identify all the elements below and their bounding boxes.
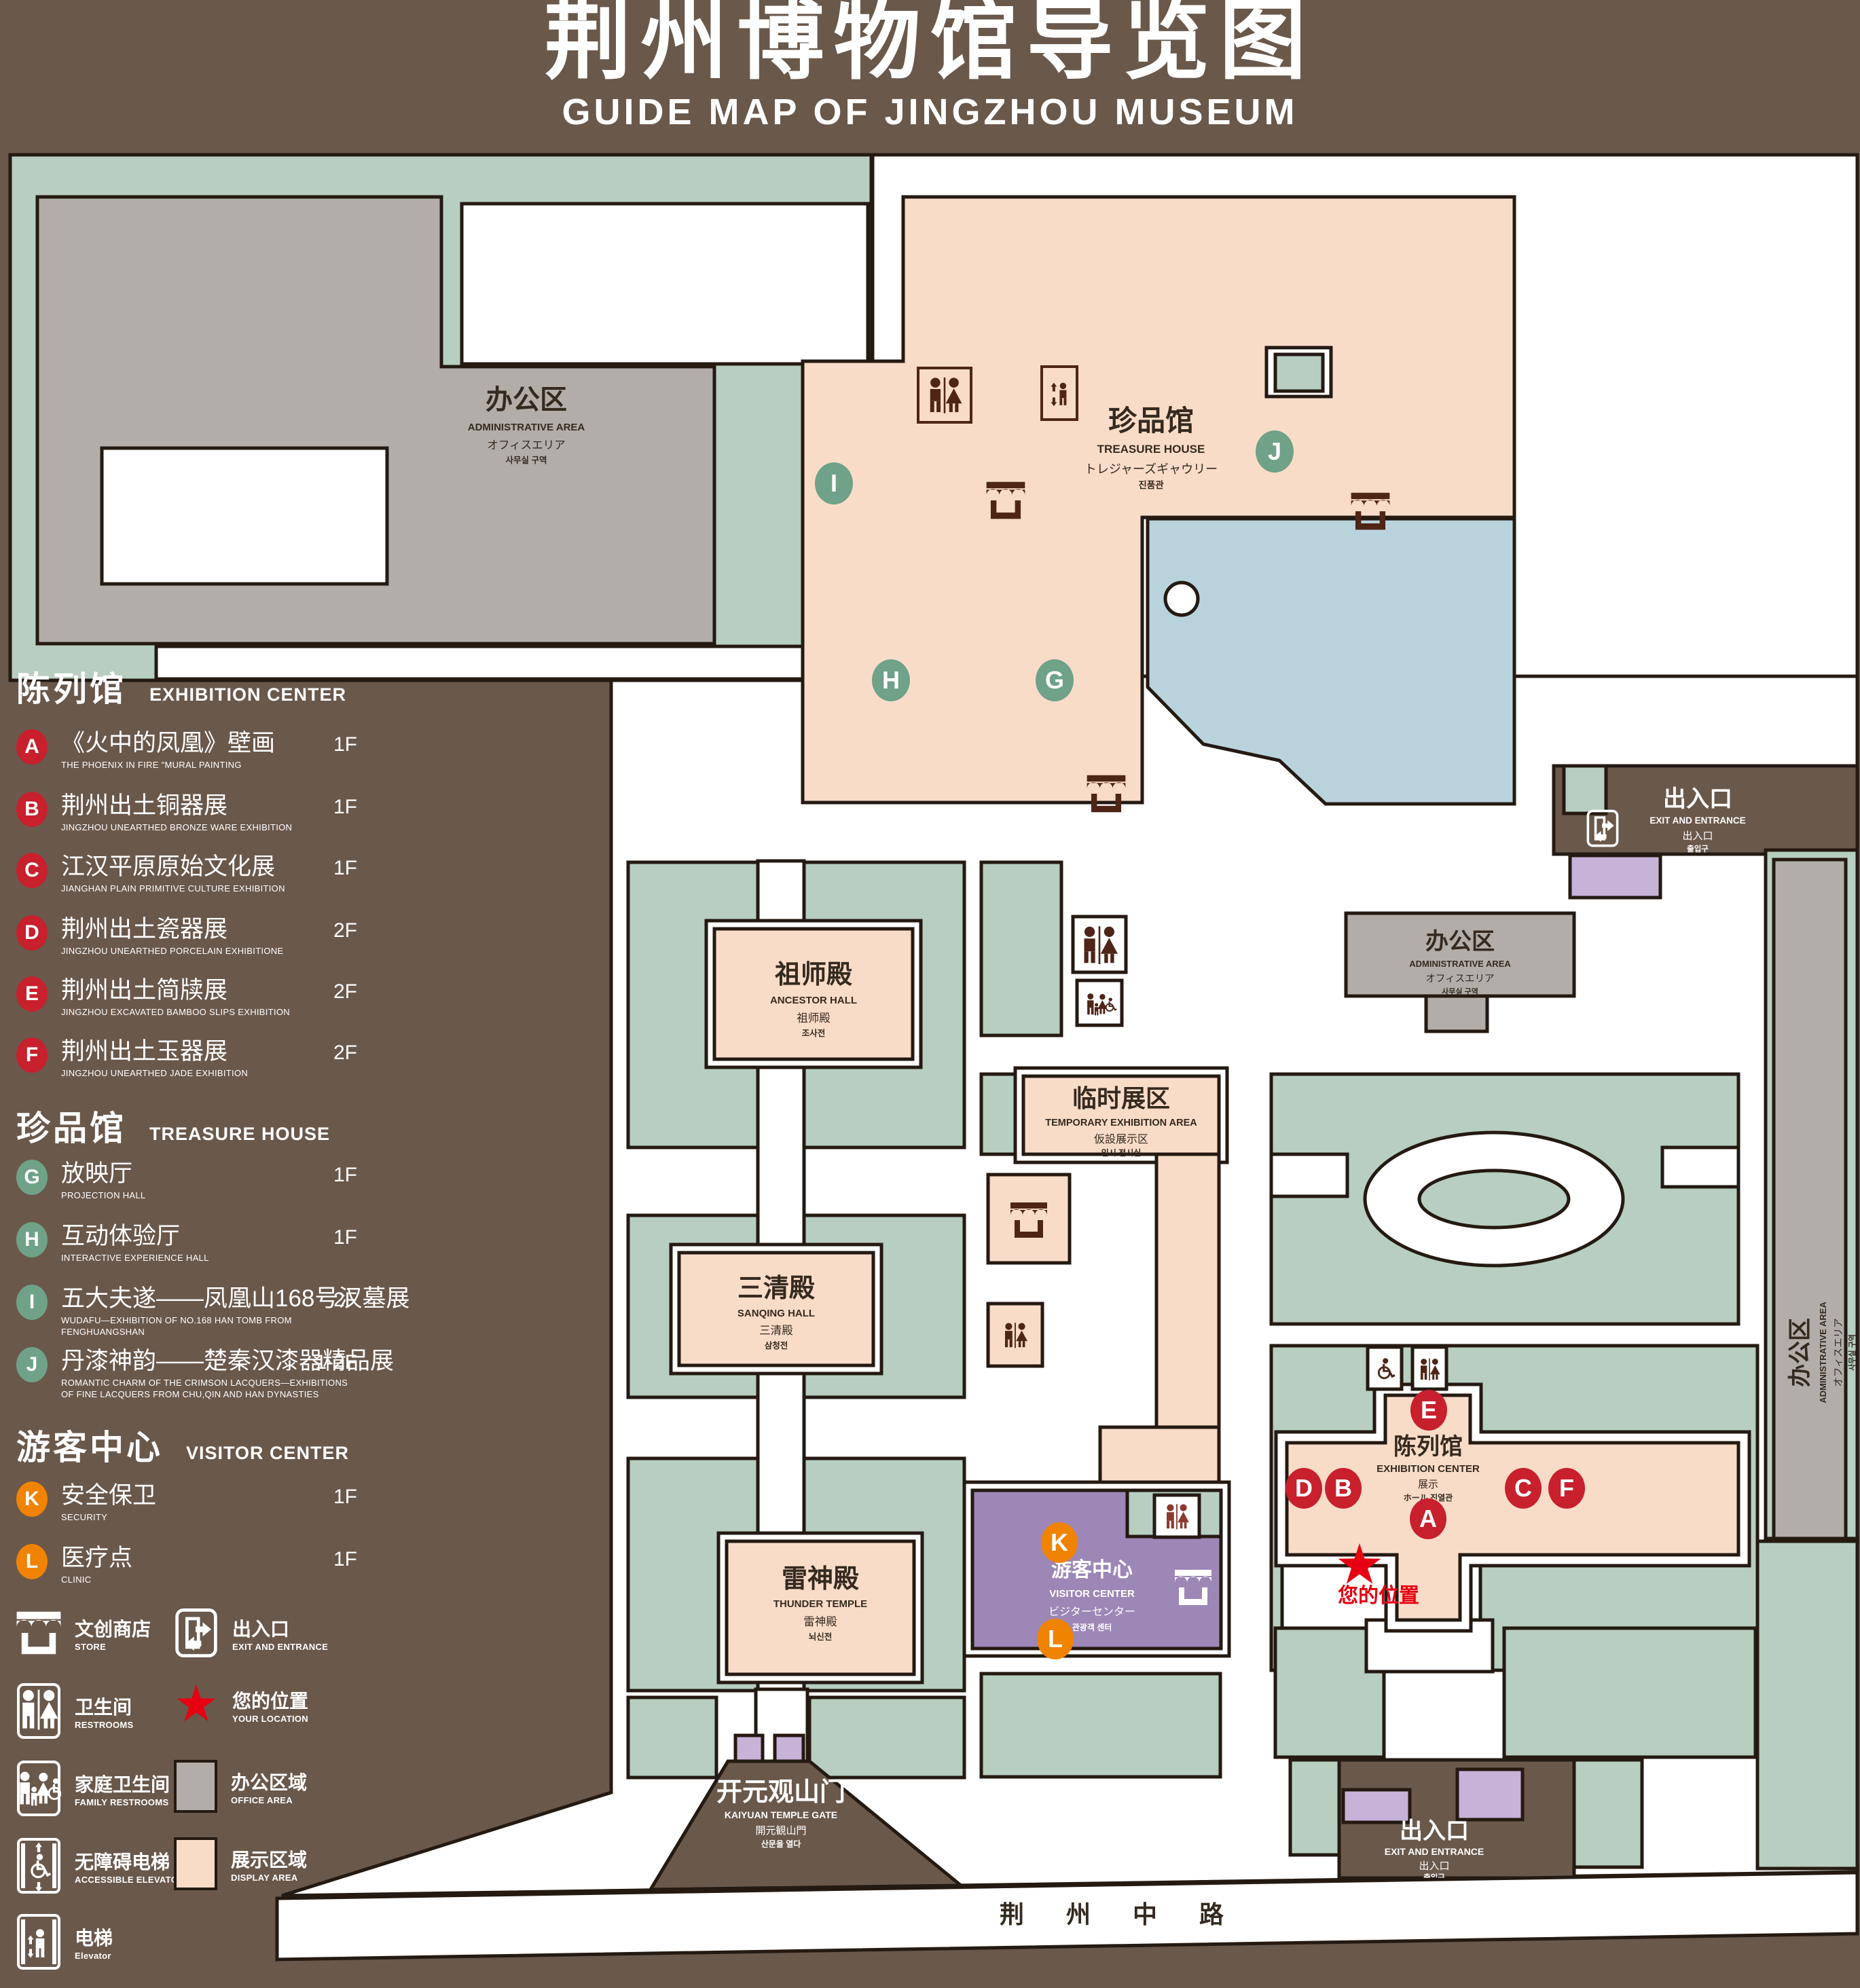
legend-elevator: 电梯Elevator [16, 1913, 113, 1970]
svg-text:I: I [831, 469, 837, 497]
badge-f: F [16, 1037, 48, 1073]
svg-text:オフィスエリア: オフィスエリア [487, 439, 565, 452]
road-label: 荆 州 中 路 [1000, 1900, 1241, 1928]
exit-icon [174, 1606, 219, 1659]
svg-text:開元観山門: 開元観山門 [755, 1825, 806, 1837]
floor-badge: 1F [333, 1226, 357, 1249]
badge-g: G [16, 1160, 48, 1195]
svg-text:THUNDER TEMPLE: THUNDER TEMPLE [773, 1598, 867, 1610]
svg-text:祖师殿: 祖师殿 [797, 1012, 831, 1025]
green-exit-west [1290, 1760, 1339, 1855]
svg-text:仮設展示区: 仮設展示区 [1094, 1133, 1148, 1145]
svg-text:ADMINISTRATIVE AREA: ADMINISTRATIVE AREA [1818, 1302, 1828, 1403]
garden-path-west [1271, 1154, 1347, 1196]
svg-text:출입구: 출입구 [1687, 844, 1709, 853]
legend-item-f: F 荆州出土玉器展 JINGZHOU UNEARTHED JADE EXHIBI… [16, 1036, 357, 1079]
legend-icons-row-5: 电梯Elevator [16, 1913, 369, 1974]
floor-badge: 2F [333, 980, 357, 1004]
svg-text:관광객 센터: 관광객 센터 [1072, 1622, 1112, 1632]
badge-h: H [16, 1222, 48, 1257]
svg-text:진품관: 진품관 [1138, 479, 1164, 490]
floor-badge: 2F [333, 1289, 357, 1312]
badge-e: E [16, 976, 48, 1012]
svg-text:A: A [1419, 1505, 1437, 1532]
floor-badge: 1F [333, 1486, 357, 1509]
legend-item-d: D 荆州出土瓷器展 JINGZHOU UNEARTHED PORCELAIN E… [16, 914, 357, 957]
marker-g: G [1036, 659, 1074, 701]
svg-text:陈列馆: 陈列馆 [1393, 1434, 1463, 1460]
green-gate-east [809, 1697, 964, 1778]
svg-text:出入口: 出入口 [1663, 786, 1732, 812]
svg-text:TREASURE HOUSE: TREASURE HOUSE [1097, 443, 1205, 456]
marker-f: F [1548, 1468, 1585, 1509]
svg-text:ADMINISTRATIVE AREA: ADMINISTRATIVE AREA [468, 422, 585, 433]
display-area-swatch [174, 1837, 217, 1890]
svg-text:ビジターセンター: ビジターセンター [1048, 1606, 1135, 1618]
legend-item-k: K 安全保卫 SECURITY 1F [16, 1480, 357, 1523]
exit-building-east [1457, 1769, 1522, 1820]
office-area-swatch [174, 1760, 217, 1813]
store-icon [16, 1606, 61, 1659]
garden-path-east [1662, 1147, 1738, 1187]
legend-your-location: 您的位置YOUR LOCATION [174, 1682, 308, 1727]
badge-a: A [16, 729, 48, 765]
elevator-icon [16, 1913, 61, 1970]
family-restroom-icon [16, 1760, 61, 1817]
legend-icons-row-4: 无障碍电梯ACCESSIBLE ELEVATOR 展示区域DISPLAY ARE… [16, 1837, 369, 1898]
legend-item-g: G 放映厅 PROJECTION HALL 1F [16, 1158, 357, 1201]
badge-j: J [16, 1347, 48, 1382]
green-bottom-right [1757, 1541, 1857, 1869]
legend-item-l: L 医疗点 CLINIC 1F [16, 1543, 357, 1585]
svg-text:办公区: 办公区 [1787, 1318, 1813, 1387]
legend-office-area: 办公区域OFFICE AREA [174, 1760, 307, 1813]
legend-accessible-elevator: 无障碍电梯ACCESSIBLE ELEVATOR [16, 1837, 185, 1894]
legend-item-b: B 荆州出土铜器展 JINGZHOU UNEARTHED BRONZE WARE… [16, 790, 357, 833]
marker-l: L [1037, 1619, 1074, 1659]
badge-i: I [16, 1285, 48, 1320]
floor-badge: 1F [333, 1548, 357, 1571]
svg-text:办公区: 办公区 [486, 385, 567, 415]
svg-text:뇌신전: 뇌신전 [809, 1632, 833, 1642]
svg-text:SANQING HALL: SANQING HALL [737, 1308, 815, 1319]
green-restroom-block [981, 862, 1061, 1035]
white-building-topleft [462, 204, 868, 364]
gate-door-east [775, 1735, 803, 1761]
legend-restroom: 卫生间RESTROOMS [16, 1682, 133, 1739]
floor-badge: 1F [333, 733, 357, 756]
lake-island [1165, 583, 1198, 615]
svg-text:办公区: 办公区 [1425, 929, 1495, 955]
treasure-notch-green [1275, 354, 1323, 391]
legend-item-i: I 五大夫遂——凤凰山168号汉墓展 WUDAFU—EXHIBITION OF … [16, 1283, 357, 1338]
garden-island [1419, 1171, 1569, 1228]
exit-topright-green [1564, 766, 1606, 813]
svg-text:ADMINISTRATIVE AREA: ADMINISTRATIVE AREA [1409, 959, 1511, 969]
badge-c: C [16, 853, 48, 888]
your-location-label: 您的位置 [1338, 1584, 1419, 1607]
svg-text:珍品馆: 珍品馆 [1108, 405, 1194, 437]
courtyard-topleft [102, 448, 387, 584]
legend-exit: 出入口EXIT AND ENTRANCE [174, 1606, 328, 1659]
marker-e: E [1410, 1390, 1447, 1431]
green-south-east [1504, 1628, 1755, 1757]
accessible-elevator-icon [16, 1837, 61, 1894]
floor-badge: 1-2F [315, 1351, 357, 1374]
svg-text:D: D [1295, 1474, 1313, 1502]
svg-text:雷神殿: 雷神殿 [782, 1565, 859, 1594]
badge-d: D [16, 915, 48, 951]
admin-right-tab [1426, 996, 1487, 1031]
legend-family-restroom: 家庭卫生间FAMILY RESTROOMS [16, 1760, 170, 1817]
exit-building-west [1343, 1790, 1410, 1822]
legend-item-j: J 丹漆神韵——楚秦汉漆器精品展 ROMANTIC CHARM OF THE C… [16, 1346, 357, 1400]
svg-text:K: K [1051, 1528, 1068, 1556]
section-title-zh: 珍品馆 [16, 1101, 126, 1150]
family-restroom-icon [1077, 980, 1122, 1025]
badge-k: K [16, 1481, 48, 1517]
floor-badge: 1F [333, 857, 357, 880]
svg-text:オフィスエリア: オフィスエリア [1425, 974, 1494, 984]
svg-text:산문을 열다: 산문을 열다 [761, 1839, 801, 1849]
green-exit-east [1574, 1760, 1642, 1867]
legend-section-visitor: 游客中心 VISITOR CENTER [16, 1420, 349, 1469]
svg-text:トレジャーズギャウリー: トレジャーズギャウリー [1084, 462, 1218, 476]
svg-text:L: L [1048, 1625, 1063, 1653]
svg-text:EXHIBITION CENTER: EXHIBITION CENTER [1376, 1463, 1480, 1475]
restroom-icon [16, 1682, 61, 1739]
svg-text:VISITOR CENTER: VISITOR CENTER [1049, 1588, 1135, 1600]
floor-badge: 1F [333, 796, 357, 819]
svg-text:EXIT AND ENTRANCE: EXIT AND ENTRANCE [1649, 815, 1745, 826]
svg-text:临时展区: 临时展区 [1072, 1084, 1170, 1112]
svg-text:삼청전: 삼청전 [765, 1340, 788, 1350]
legend-item-e: E 荆州出土简牍展 JINGZHOU EXCAVATED BAMBOO SLIP… [16, 975, 357, 1018]
exit-topright-building [1570, 855, 1660, 898]
svg-text:雷神殿: 雷神殿 [803, 1615, 837, 1628]
svg-text:임시 전시실: 임시 전시실 [1101, 1147, 1142, 1158]
legend-item-h: H 互动体验厅 INTERACTIVE EXPERIENCE HALL 1F [16, 1221, 357, 1264]
marker-i: I [815, 462, 853, 504]
svg-text:出入口: 出入口 [1682, 830, 1713, 842]
svg-text:三清殿: 三清殿 [737, 1274, 815, 1303]
svg-text:조사전: 조사전 [802, 1028, 826, 1038]
your-location-star-icon [174, 1682, 219, 1727]
legend-item-a: A 《火中的凤凰》壁画 THE PHOENIX IN FIRE "MURAL P… [16, 728, 357, 771]
temp-area-foot [1100, 1427, 1219, 1488]
floor-badge: 1F [333, 1164, 357, 1187]
marker-a: A [1410, 1498, 1446, 1539]
svg-text:H: H [882, 666, 900, 694]
admin-far-right-building [1774, 860, 1846, 1539]
store-building [988, 1175, 1070, 1263]
marker-j: J [1256, 430, 1294, 473]
svg-text:オフィスエリア: オフィスエリア [1834, 1318, 1844, 1386]
svg-text:ANCESTOR HALL: ANCESTOR HALL [770, 995, 857, 1006]
section-title-zh: 陈列馆 [16, 662, 126, 711]
floor-badge: 2F [333, 1042, 357, 1065]
marker-d: D [1285, 1468, 1322, 1509]
svg-text:F: F [1559, 1474, 1574, 1502]
legend-icons-row-2: 卫生间RESTROOMS 您的位置YOUR LOCATION [16, 1682, 369, 1744]
badge-l: L [16, 1544, 48, 1579]
badge-b: B [16, 792, 48, 827]
legend-icons-row-1: 文创商店STORE 出入口EXIT AND ENTRANCE [16, 1606, 369, 1668]
gate-door-west [735, 1735, 763, 1761]
svg-text:三清殿: 三清殿 [759, 1324, 793, 1337]
svg-text:KAIYUAN TEMPLE GATE: KAIYUAN TEMPLE GATE [725, 1809, 837, 1820]
legend-section-exhibition: 陈列馆 EXHIBITION CENTER [16, 662, 346, 711]
legend-section-treasure: 珍品馆 TREASURE HOUSE [16, 1101, 330, 1150]
marker-h: H [872, 659, 910, 701]
green-visitor-south [981, 1674, 1220, 1777]
svg-text:祖师殿: 祖师殿 [775, 961, 852, 989]
svg-text:G: G [1045, 666, 1064, 694]
section-title-en: VISITOR CENTER [186, 1443, 349, 1464]
svg-text:出入口: 出入口 [1419, 1860, 1449, 1872]
svg-text:사무실 구역: 사무실 구역 [506, 455, 547, 465]
svg-text:EXIT AND ENTRANCE: EXIT AND ENTRANCE [1385, 1846, 1484, 1857]
svg-text:展示: 展示 [1418, 1479, 1438, 1490]
svg-text:出入口: 出入口 [1400, 1818, 1469, 1844]
svg-text:B: B [1334, 1474, 1352, 1502]
section-title-zh: 游客中心 [16, 1420, 163, 1469]
ancestor-hall [714, 929, 913, 1059]
section-title-en: EXHIBITION CENTER [149, 684, 346, 705]
legend-item-c: C 江汉平原原始文化展 JIANGHAN PLAIN PRIMITIVE CUL… [16, 851, 357, 894]
svg-text:E: E [1421, 1396, 1437, 1424]
svg-text:TEMPORARY EXHIBITION AREA: TEMPORARY EXHIBITION AREA [1045, 1118, 1197, 1128]
section-title-en: TREASURE HOUSE [149, 1124, 330, 1145]
marker-k: K [1041, 1522, 1078, 1563]
svg-text:开元观山门: 开元观山门 [716, 1778, 845, 1807]
marker-b: B [1325, 1468, 1362, 1509]
svg-text:C: C [1514, 1474, 1532, 1502]
floor-badge: 2F [333, 919, 357, 942]
legend-display-area: 展示区域DISPLAY AREA [174, 1837, 307, 1890]
svg-text:사무실 구역: 사무실 구역 [1847, 1334, 1857, 1371]
green-gate-west [628, 1697, 716, 1778]
legend-store: 文创商店STORE [16, 1606, 151, 1659]
legend-icons-row-3: 家庭卫生间FAMILY RESTROOMS 办公区域OFFICE AREA [16, 1760, 369, 1821]
svg-text:J: J [1268, 437, 1281, 465]
svg-text:사무실 구역: 사무실 구역 [1442, 987, 1478, 996]
marker-c: C [1505, 1468, 1542, 1509]
